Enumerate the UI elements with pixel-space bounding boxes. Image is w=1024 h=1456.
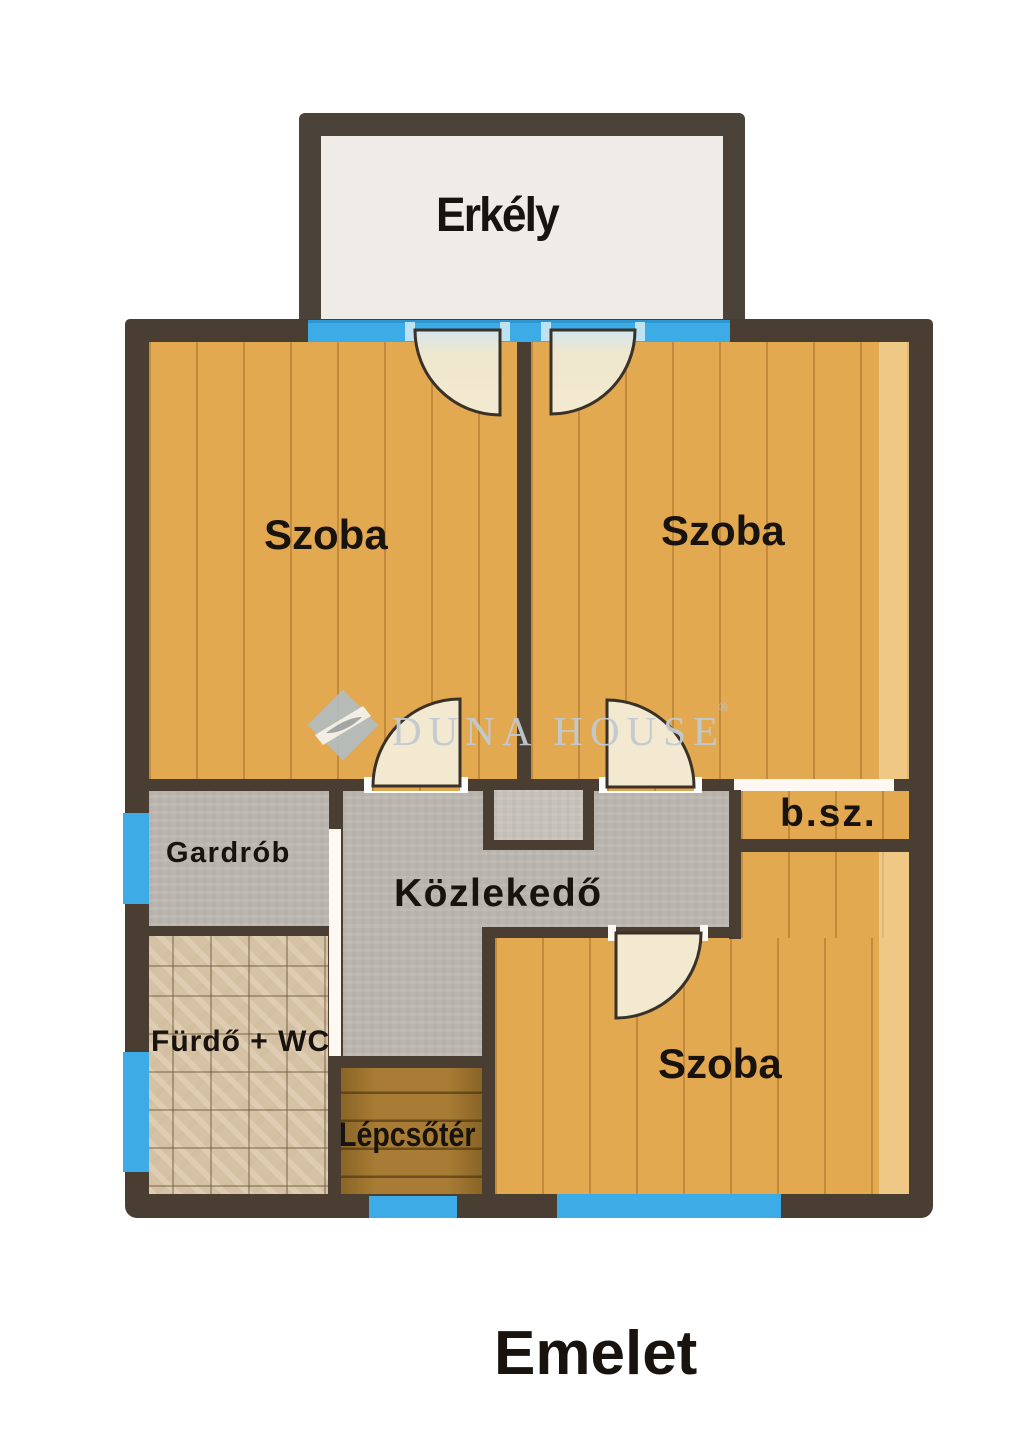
svg-text:DUNA HOUSE: DUNA HOUSE	[392, 708, 725, 754]
svg-text:®: ®	[718, 699, 728, 714]
